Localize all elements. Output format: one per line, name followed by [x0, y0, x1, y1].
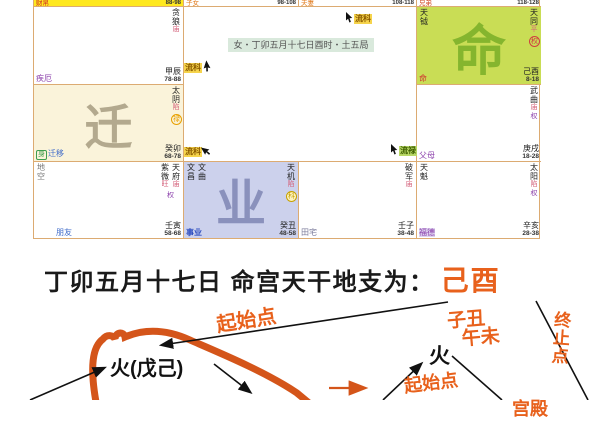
star-tanlang: 贪狼 庙 — [171, 9, 181, 35]
stem-branch-block: 癸卯 68-78 — [164, 144, 181, 160]
marker-liuke-2: 流科 — [184, 59, 211, 77]
hua-lu-badge: 禄 — [171, 114, 182, 125]
palace-label: 兄弟 — [419, 0, 432, 7]
star-group-wenchang-wenqu: 文昌 文曲 — [186, 164, 207, 181]
star-tianji: 天机 陷 科 — [286, 164, 296, 202]
palace-sliver-shen[interactable]: 兄弟 118-128 — [417, 0, 541, 7]
hua-quan-badge: 权 — [529, 36, 540, 47]
palace-cell-yin-pengyou[interactable]: 地空 紫微 旺 天府 庙 权 朋友 壬寅 58-68 — [34, 162, 184, 238]
star-tiantong: 天同 平 权 — [529, 9, 539, 47]
star-brightness: 陷 — [529, 181, 539, 190]
age-range: 108-118 — [392, 0, 414, 7]
star-brightness: 陷 — [171, 104, 181, 113]
palace-sliver-wei[interactable]: 夫妻 108-118 — [299, 0, 417, 7]
age-range: 118-128 — [517, 0, 539, 7]
age-range: 88-98 — [166, 0, 181, 7]
stem-branch-block: 甲辰 78-88 — [164, 67, 181, 83]
mouse-cursor-icon — [345, 10, 353, 28]
hua-ke-badge: 科 — [286, 191, 297, 202]
self-hua: 权 — [160, 190, 181, 200]
palace-label: 田宅 — [301, 228, 317, 237]
palace-label: 事业 — [186, 228, 202, 237]
label-cutoff-bottom: 宫殿 — [512, 395, 548, 421]
palace-label: 身迁移 — [36, 149, 64, 160]
palace-label: 父母 — [419, 151, 435, 160]
star-brightness: 庙 — [529, 104, 539, 113]
star-brightness: 平 — [529, 26, 539, 35]
star-brightness: 庙 — [404, 181, 414, 190]
star-dikong: 地空 — [36, 164, 46, 181]
label-zhongzhidian: 终止点 — [551, 311, 575, 366]
star-tiankui: 天魁 — [419, 164, 429, 181]
mouse-cursor-icon — [390, 142, 398, 160]
label-huo-2: 火 — [429, 340, 450, 370]
chart-center-area — [184, 7, 417, 162]
star-wuqu: 武曲 庙 权 — [529, 87, 539, 121]
star-brightness: 庙 — [171, 26, 181, 35]
marker-liuke-3: 流科 — [184, 143, 211, 161]
palace-label: 朋友 — [36, 228, 72, 237]
palace-cell-chen[interactable]: 贪狼 庙 疾厄 甲辰 78-88 — [34, 7, 184, 85]
star-taiyin: 太阴 陷 禄 — [171, 87, 181, 125]
palace-cell-you-ming[interactable]: 命 天钺 天同 平 权 命 己酉 8-18 — [417, 7, 541, 85]
stem-branch-block: 壬寅 58-68 — [164, 221, 181, 237]
star-group-ziwei-tianfu: 紫微 旺 天府 庙 权 — [160, 164, 181, 200]
palace-label: 疾厄 — [36, 74, 52, 83]
palace-cell-mao-qianyi[interactable]: 迁 太阴 陷 禄 身迁移 癸卯 68-78 — [34, 85, 184, 162]
self-hua: 权 — [529, 113, 539, 122]
palace-cell-chou-shiye[interactable]: 业 文昌 文曲 天机 陷 科 事业 癸丑 48-58 — [184, 162, 299, 238]
marker-liulu: 流禄 — [390, 142, 417, 160]
label-zichou-wuwei: 子丑 午未 — [446, 308, 500, 350]
palace-sliver-si[interactable]: 财帛 88-98 — [34, 0, 184, 7]
stem-branch-block: 壬子 38-48 — [397, 221, 414, 237]
marker-liuke-1: 流科 — [345, 10, 372, 28]
star-tianyue: 天钺 — [419, 9, 429, 26]
palace-cell-zi-tianzhai[interactable]: 破军 庙 田宅 壬子 38-48 — [299, 162, 417, 238]
label-huo-wuji: 火(戊己) — [110, 352, 183, 381]
stem-branch-block: 癸丑 48-58 — [279, 221, 296, 237]
arrow-down-right — [214, 364, 250, 392]
palace-cell-xu-fumu[interactable]: 武曲 庙 权 父母 庚戌 18-28 — [417, 85, 541, 162]
arrow-from-jiyou — [162, 302, 448, 345]
birth-info-badge: 女・丁卯五月十七日酉时・土五局 — [228, 38, 374, 52]
age-range: 98-108 — [277, 0, 296, 7]
palace-label: 财帛 — [36, 0, 49, 7]
star-brightness: 陷 — [286, 181, 296, 190]
screenshot-root: { "chart": { "info_badge": "女・丁卯五月十七日酉时・… — [0, 0, 600, 400]
line-under-zichou — [452, 356, 502, 400]
self-hua: 权 — [529, 190, 539, 199]
palace-sliver-wu[interactable]: 子女 98-108 — [184, 0, 299, 7]
stem-branch-block: 辛亥 28-38 — [522, 221, 539, 237]
star-taiyang: 太阳 陷 权 — [529, 164, 539, 198]
stem-branch-block: 己酉 8-18 — [523, 67, 539, 83]
star-pojun: 破军 庙 — [404, 164, 414, 190]
palace-label: 子女 — [186, 0, 199, 7]
annotation-drawing — [0, 250, 600, 400]
palace-cell-hai-fude[interactable]: 天魁 太阳 陷 权 福德 辛亥 28-38 — [417, 162, 541, 238]
ziwei-chart: 财帛 88-98 子女 98-108 夫妻 108-118 兄弟 118-128… — [33, 0, 540, 239]
palace-label: 福德 — [419, 228, 435, 237]
palace-label: 夫妻 — [301, 0, 314, 7]
body-palace-badge: 身 — [36, 150, 47, 160]
stem-branch-block: 庚戌 18-28 — [522, 144, 539, 160]
palace-label: 命 — [419, 74, 427, 83]
